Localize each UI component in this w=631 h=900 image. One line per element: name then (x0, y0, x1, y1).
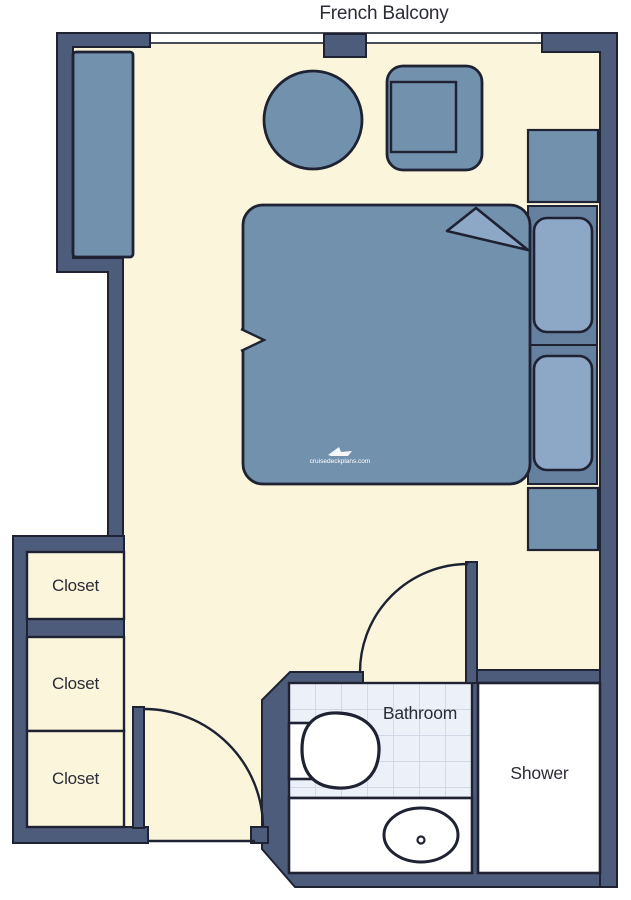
armchair-seat (391, 82, 456, 152)
sink-drain (418, 837, 425, 844)
closet-2-label: Closet (27, 637, 124, 731)
watermark-text: cruisedeckplans.com (297, 456, 383, 466)
closet-1-label: Closet (27, 552, 124, 619)
floorplan-canvas: French Balcony Closet Closet Closet Bath… (0, 0, 631, 900)
round-table (264, 71, 362, 169)
pillow-top (534, 218, 592, 332)
window-mullion (324, 34, 366, 57)
entry-door-leaf (133, 707, 144, 828)
sofa (73, 52, 133, 257)
sink-basin (384, 808, 458, 862)
nightstand-bottom (528, 488, 598, 550)
nightstand-top (528, 130, 598, 202)
pillow-bottom (534, 356, 592, 470)
closet-divider-wall (27, 619, 124, 637)
bathroom-door-leaf (466, 562, 477, 683)
closet-3-label: Closet (27, 731, 124, 827)
bathroom-label: Bathroom (340, 699, 500, 727)
plan-title: French Balcony (274, 1, 494, 27)
bed-mattress (243, 205, 530, 484)
shower-label: Shower (479, 759, 600, 787)
